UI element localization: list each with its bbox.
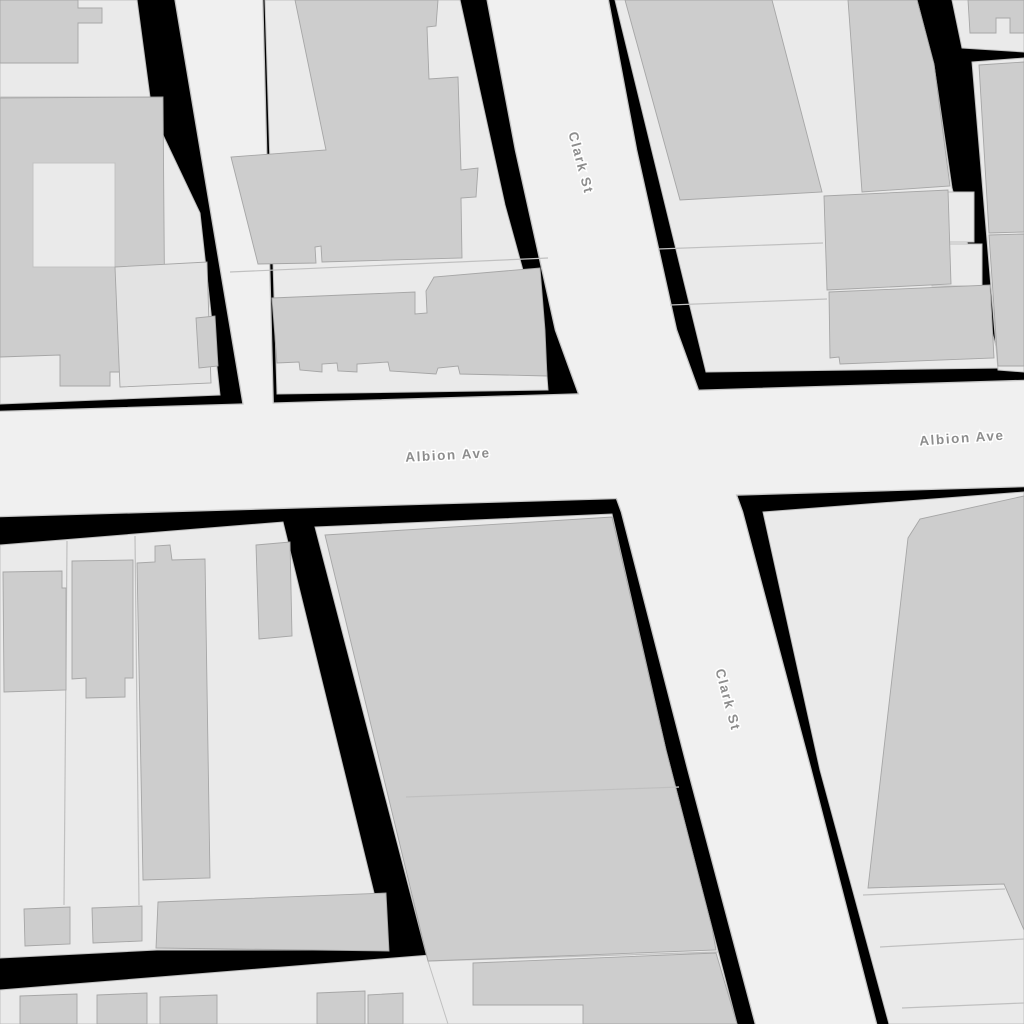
building — [368, 993, 403, 1024]
building — [829, 285, 994, 364]
building — [968, 0, 1024, 33]
building — [24, 907, 70, 946]
building — [824, 190, 951, 290]
building — [160, 995, 217, 1024]
building — [72, 560, 133, 698]
building — [137, 545, 210, 880]
building — [156, 893, 389, 951]
map-canvas[interactable]: Clark StClark StAlbion AveAlbion Ave — [0, 0, 1024, 1024]
building — [196, 316, 218, 368]
building — [256, 542, 292, 639]
building — [20, 994, 77, 1024]
building — [317, 991, 365, 1024]
building — [97, 993, 147, 1024]
building — [92, 906, 142, 943]
building — [3, 571, 66, 692]
courtyard — [33, 163, 115, 267]
